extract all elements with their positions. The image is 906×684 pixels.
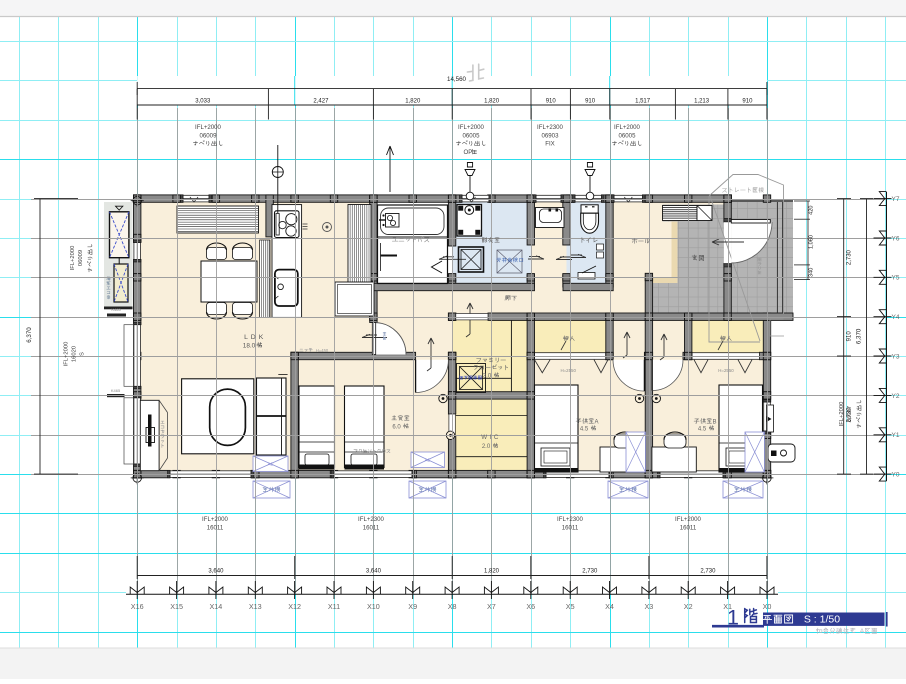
svg-text:X13: X13 xyxy=(249,602,262,611)
svg-text:Y4: Y4 xyxy=(892,314,900,321)
svg-text:2,427: 2,427 xyxy=(313,99,329,105)
svg-text:X2: X2 xyxy=(684,602,693,611)
svg-text:H=2550: H=2550 xyxy=(718,368,734,373)
svg-text:A: A xyxy=(860,628,865,635)
svg-text:IFL+2300: IFL+2300 xyxy=(358,516,385,523)
svg-text:IFL+2300: IFL+2300 xyxy=(537,124,564,131)
svg-text:3.0: 3.0 xyxy=(483,374,492,380)
svg-text:AC: AC xyxy=(424,458,430,463)
svg-text:340: 340 xyxy=(809,268,815,277)
svg-text:16011: 16011 xyxy=(363,524,380,531)
svg-text:6,370: 6,370 xyxy=(856,328,863,344)
svg-text:1,517: 1,517 xyxy=(635,99,651,105)
svg-text:3,640: 3,640 xyxy=(208,569,224,575)
svg-text:H=450: H=450 xyxy=(316,348,329,353)
svg-text:IFL+2000: IFL+2000 xyxy=(675,516,702,523)
svg-text:AC: AC xyxy=(267,462,273,467)
svg-text:X8: X8 xyxy=(448,602,457,611)
svg-text:X11: X11 xyxy=(328,602,340,611)
svg-text:2,730: 2,730 xyxy=(847,249,853,265)
svg-text:1,060: 1,060 xyxy=(809,235,815,249)
svg-text:06903: 06903 xyxy=(542,132,560,139)
svg-text:Y6: Y6 xyxy=(892,235,900,242)
svg-text:6,370: 6,370 xyxy=(26,327,33,343)
svg-text:OP: OP xyxy=(463,149,472,156)
svg-text:06005: 06005 xyxy=(463,132,481,139)
svg-text:1,820: 1,820 xyxy=(405,99,421,105)
svg-text:A: A xyxy=(594,420,598,426)
svg-text:X16: X16 xyxy=(131,602,144,611)
svg-text:S: S xyxy=(80,352,86,356)
svg-text:K465: K465 xyxy=(111,388,121,393)
svg-text:X5: X5 xyxy=(566,602,575,611)
svg-text:14,560: 14,560 xyxy=(447,76,466,83)
svg-text:X6: X6 xyxy=(526,602,535,611)
svg-text:K465: K465 xyxy=(111,307,121,312)
svg-text:IFL+2000: IFL+2000 xyxy=(614,124,641,131)
svg-text:Y7: Y7 xyxy=(892,196,900,203)
svg-text:06009: 06009 xyxy=(200,132,218,139)
svg-text:S : 1/50: S : 1/50 xyxy=(804,614,840,626)
svg-text:910: 910 xyxy=(847,331,853,342)
svg-text:Y1: Y1 xyxy=(892,432,900,439)
svg-text:1: 1 xyxy=(727,606,739,630)
svg-text:16011: 16011 xyxy=(562,524,579,531)
svg-text:910: 910 xyxy=(742,99,753,105)
svg-text:X15: X15 xyxy=(170,602,183,611)
svg-text:FIX: FIX xyxy=(545,141,554,148)
svg-text:18.0: 18.0 xyxy=(243,343,256,350)
svg-text:X14: X14 xyxy=(210,602,223,611)
svg-text:H=2550: H=2550 xyxy=(560,368,576,373)
svg-text:IFL+2000: IFL+2000 xyxy=(64,342,70,367)
svg-text:IFL+2000: IFL+2000 xyxy=(70,246,76,271)
svg-text:3,033: 3,033 xyxy=(195,99,211,105)
svg-text:910: 910 xyxy=(585,99,596,105)
svg-text:6.0: 6.0 xyxy=(392,425,401,431)
svg-text:W I C: W I C xyxy=(481,434,499,441)
svg-text:IFL+2000: IFL+2000 xyxy=(458,124,485,131)
svg-text:Y5: Y5 xyxy=(892,275,900,282)
svg-text:X12: X12 xyxy=(288,602,301,611)
svg-text:2,730: 2,730 xyxy=(700,569,716,575)
svg-text:B: B xyxy=(712,420,716,426)
svg-text:1,820: 1,820 xyxy=(484,99,500,105)
svg-text:420: 420 xyxy=(809,206,815,215)
svg-text:Y0: Y0 xyxy=(892,472,900,479)
svg-text:Y3: Y3 xyxy=(892,353,900,360)
svg-text:06005: 06005 xyxy=(619,132,637,139)
svg-text:X9: X9 xyxy=(408,602,417,611)
svg-text:1,820: 1,820 xyxy=(484,569,500,575)
svg-text:16011: 16011 xyxy=(207,524,224,531)
svg-text:L D K: L D K xyxy=(244,334,264,341)
svg-text:910: 910 xyxy=(546,99,557,105)
svg-text:4.5: 4.5 xyxy=(580,427,589,433)
svg-text:IFL+2000: IFL+2000 xyxy=(195,124,222,131)
svg-text:2,730: 2,730 xyxy=(847,407,853,423)
svg-text:2,730: 2,730 xyxy=(582,569,598,575)
svg-text:4.5: 4.5 xyxy=(698,427,707,433)
svg-text:16011: 16011 xyxy=(680,524,697,531)
svg-text:X0: X0 xyxy=(763,602,772,611)
svg-text:IFL+2300: IFL+2300 xyxy=(557,516,584,523)
svg-text:X3: X3 xyxy=(645,602,654,611)
svg-text:Y2: Y2 xyxy=(892,393,900,400)
svg-text:IFL+2000: IFL+2000 xyxy=(202,516,229,523)
svg-text:16020: 16020 xyxy=(72,346,78,362)
svg-text:2.0: 2.0 xyxy=(482,444,491,450)
svg-text:06009: 06009 xyxy=(78,250,84,266)
svg-text:X7: X7 xyxy=(487,602,496,611)
svg-text:1,213: 1,213 xyxy=(694,99,710,105)
svg-text:X4: X4 xyxy=(605,602,614,611)
svg-text:X10: X10 xyxy=(367,602,380,611)
svg-text:3,640: 3,640 xyxy=(366,569,382,575)
